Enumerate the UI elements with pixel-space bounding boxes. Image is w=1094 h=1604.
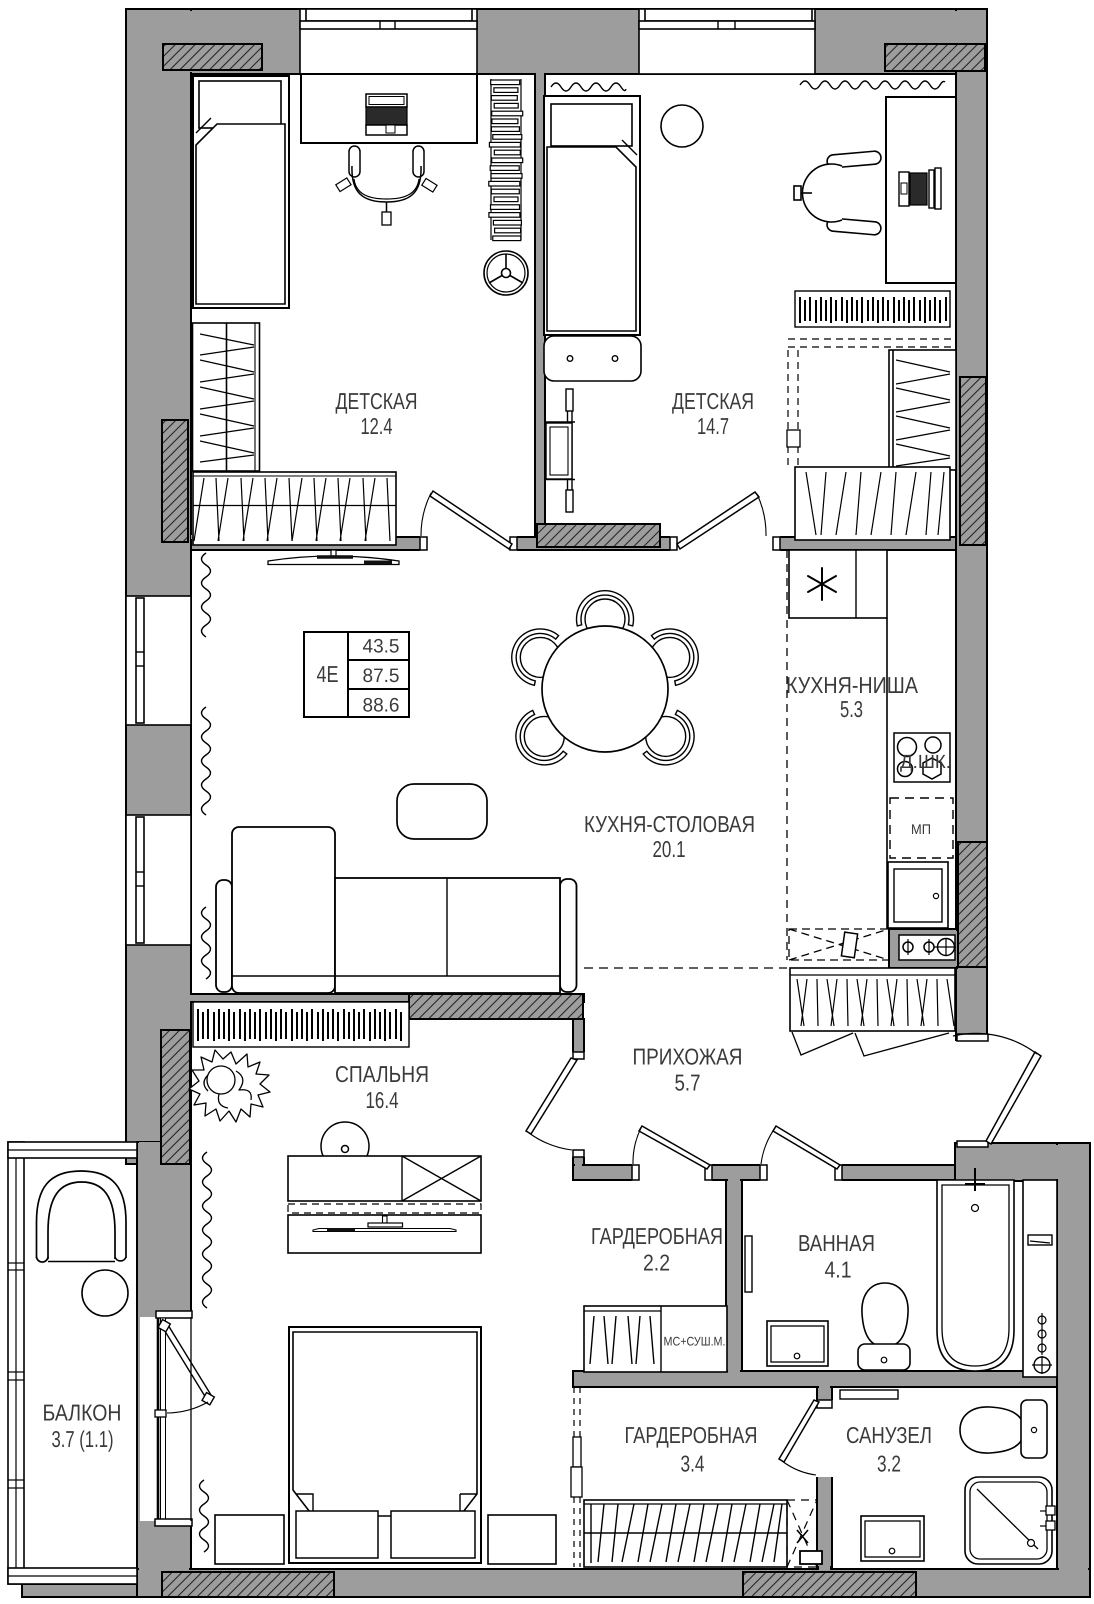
svg-text:МП: МП xyxy=(911,821,931,837)
svg-text:САНУЗЕЛ: САНУЗЕЛ xyxy=(846,1422,932,1448)
svg-text:88.6: 88.6 xyxy=(363,695,400,717)
svg-text:3.7 (1.1): 3.7 (1.1) xyxy=(52,1426,114,1452)
svg-text:ГАРДЕРОБНАЯ: ГАРДЕРОБНАЯ xyxy=(591,1223,723,1249)
svg-text:4Е: 4Е xyxy=(317,661,339,687)
svg-text:4.1: 4.1 xyxy=(825,1257,852,1283)
svg-text:ДЕТСКАЯ: ДЕТСКАЯ xyxy=(672,388,754,414)
svg-text:БАЛКОН: БАЛКОН xyxy=(43,1400,122,1426)
svg-text:16.4: 16.4 xyxy=(366,1087,399,1113)
svg-text:5.3: 5.3 xyxy=(840,696,863,722)
svg-text:ПРИХОЖАЯ: ПРИХОЖАЯ xyxy=(633,1044,743,1070)
svg-text:87.5: 87.5 xyxy=(363,665,400,687)
svg-text:КУХНЯ-НИША: КУХНЯ-НИША xyxy=(786,672,919,698)
svg-text:МС+СУШ.М.: МС+СУШ.М. xyxy=(664,1335,726,1349)
svg-text:3.4: 3.4 xyxy=(681,1451,705,1477)
svg-text:12.4: 12.4 xyxy=(361,413,393,439)
svg-text:ДЕТСКАЯ: ДЕТСКАЯ xyxy=(336,388,418,414)
svg-text:Д.ШК.: Д.ШК. xyxy=(900,752,951,773)
svg-text:14.7: 14.7 xyxy=(697,413,729,439)
svg-text:20.1: 20.1 xyxy=(653,836,686,862)
svg-text:5.7: 5.7 xyxy=(675,1070,701,1096)
svg-text:3.2: 3.2 xyxy=(877,1451,901,1477)
svg-text:43.5: 43.5 xyxy=(363,636,400,658)
svg-text:СПАЛЬНЯ: СПАЛЬНЯ xyxy=(335,1061,429,1087)
svg-text:ВАННАЯ: ВАННАЯ xyxy=(798,1230,875,1256)
svg-text:2.2: 2.2 xyxy=(643,1250,670,1276)
svg-text:КУХНЯ-СТОЛОВАЯ: КУХНЯ-СТОЛОВАЯ xyxy=(584,811,755,837)
svg-text:ГАРДЕРОБНАЯ: ГАРДЕРОБНАЯ xyxy=(625,1422,758,1448)
